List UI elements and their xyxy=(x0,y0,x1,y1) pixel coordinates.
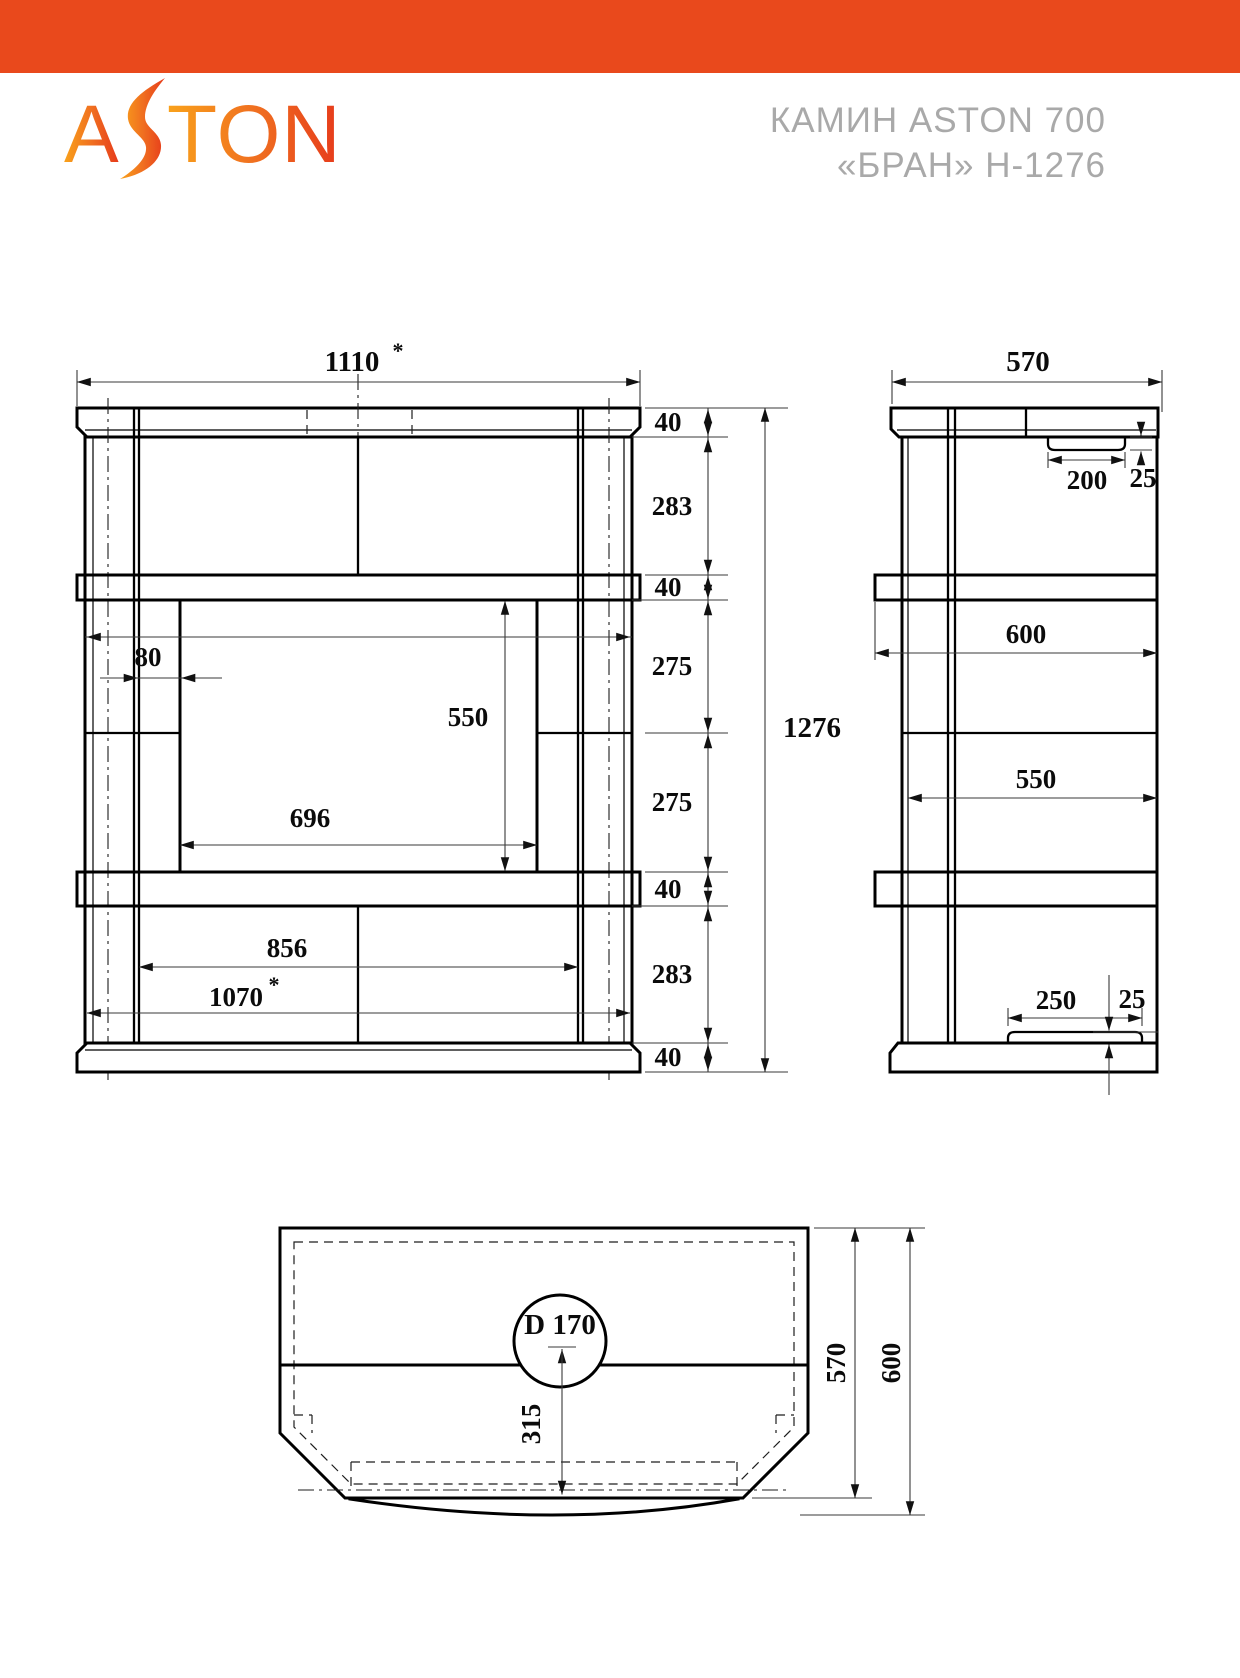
top-view: D 170 315 570 600 xyxy=(280,1228,925,1515)
dim-chain-283b: 283 xyxy=(652,959,693,989)
dim-pad-height: 25 xyxy=(1119,984,1146,1014)
dim-shelf-depth: 600 xyxy=(1006,619,1047,649)
dim-width-bottom: 1070 xyxy=(209,982,263,1012)
dim-chain-275a: 275 xyxy=(652,651,693,681)
dim-chain-283a: 283 xyxy=(652,491,693,521)
dim-opening-width: 696 xyxy=(290,803,331,833)
drawing-page: A TON КАМИН ASTON 700 «БРАН» Н-1276 xyxy=(0,0,1240,1678)
dim-pilaster-offset: 80 xyxy=(135,642,162,672)
dim-body-depth: 550 xyxy=(1016,764,1057,794)
dim-width-top-star: * xyxy=(393,338,404,363)
dim-recess-depth: 25 xyxy=(1130,463,1157,493)
dim-chain-40a: 40 xyxy=(655,407,682,437)
dim-recess-width: 200 xyxy=(1067,465,1108,495)
front-view: 1110 * xyxy=(77,338,841,1080)
dim-opening-height: 550 xyxy=(448,702,489,732)
dim-width-top: 1110 xyxy=(325,346,380,378)
dim-pad-width: 250 xyxy=(1036,985,1077,1015)
dim-chain-40d: 40 xyxy=(655,1042,682,1072)
dim-hole-diameter: D 170 xyxy=(524,1309,596,1341)
dim-hole-offset: 315 xyxy=(516,1404,546,1445)
dim-inner-width: 856 xyxy=(267,933,308,963)
dim-depth-overall: 600 xyxy=(876,1343,906,1384)
dim-depth-top: 570 xyxy=(821,1343,851,1384)
dim-chain-275b: 275 xyxy=(652,787,693,817)
dim-chain-40c: 40 xyxy=(655,874,682,904)
side-view: 570 200 25 600 550 250 xyxy=(875,346,1162,1095)
technical-drawing: 1110 * xyxy=(0,0,1240,1678)
dim-total-height: 1276 xyxy=(783,712,841,744)
dim-depth: 570 xyxy=(1006,346,1050,378)
dim-width-bottom-star: * xyxy=(269,972,280,997)
dim-chain-40b: 40 xyxy=(655,572,682,602)
